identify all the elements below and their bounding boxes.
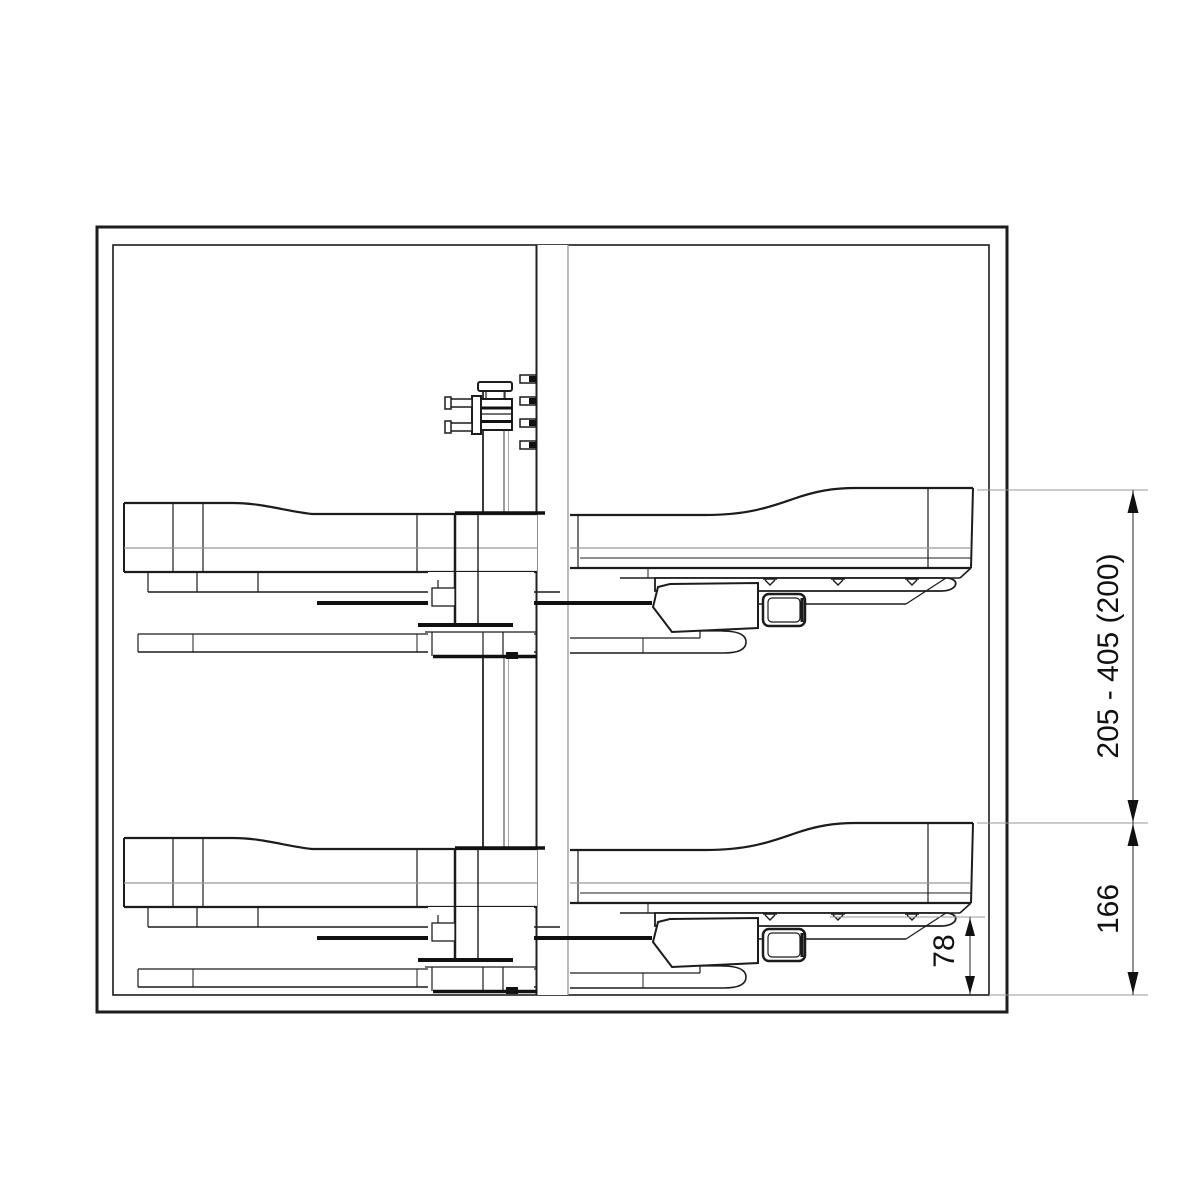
dimension-label-lower-shelf-height: 166 <box>1092 884 1125 934</box>
technical-drawing: 205 - 405 (200) 166 78 <box>0 0 1200 1200</box>
divider-clip-tabs <box>520 375 536 449</box>
dimension-lower-shelf-height: 166 <box>1092 823 1139 995</box>
dimension-rail-to-bottom-clearance: 78 <box>928 917 975 995</box>
dimension-mounting-height-range: 205 - 405 (200) <box>1092 490 1139 823</box>
technical-drawing-page: 205 - 405 (200) 166 78 <box>0 0 1200 1200</box>
dimension-label-rail-to-bottom-clearance: 78 <box>928 934 961 967</box>
dimension-label-mounting-height-range: 205 - 405 (200) <box>1092 553 1125 758</box>
center-divider-panel <box>536 245 568 995</box>
